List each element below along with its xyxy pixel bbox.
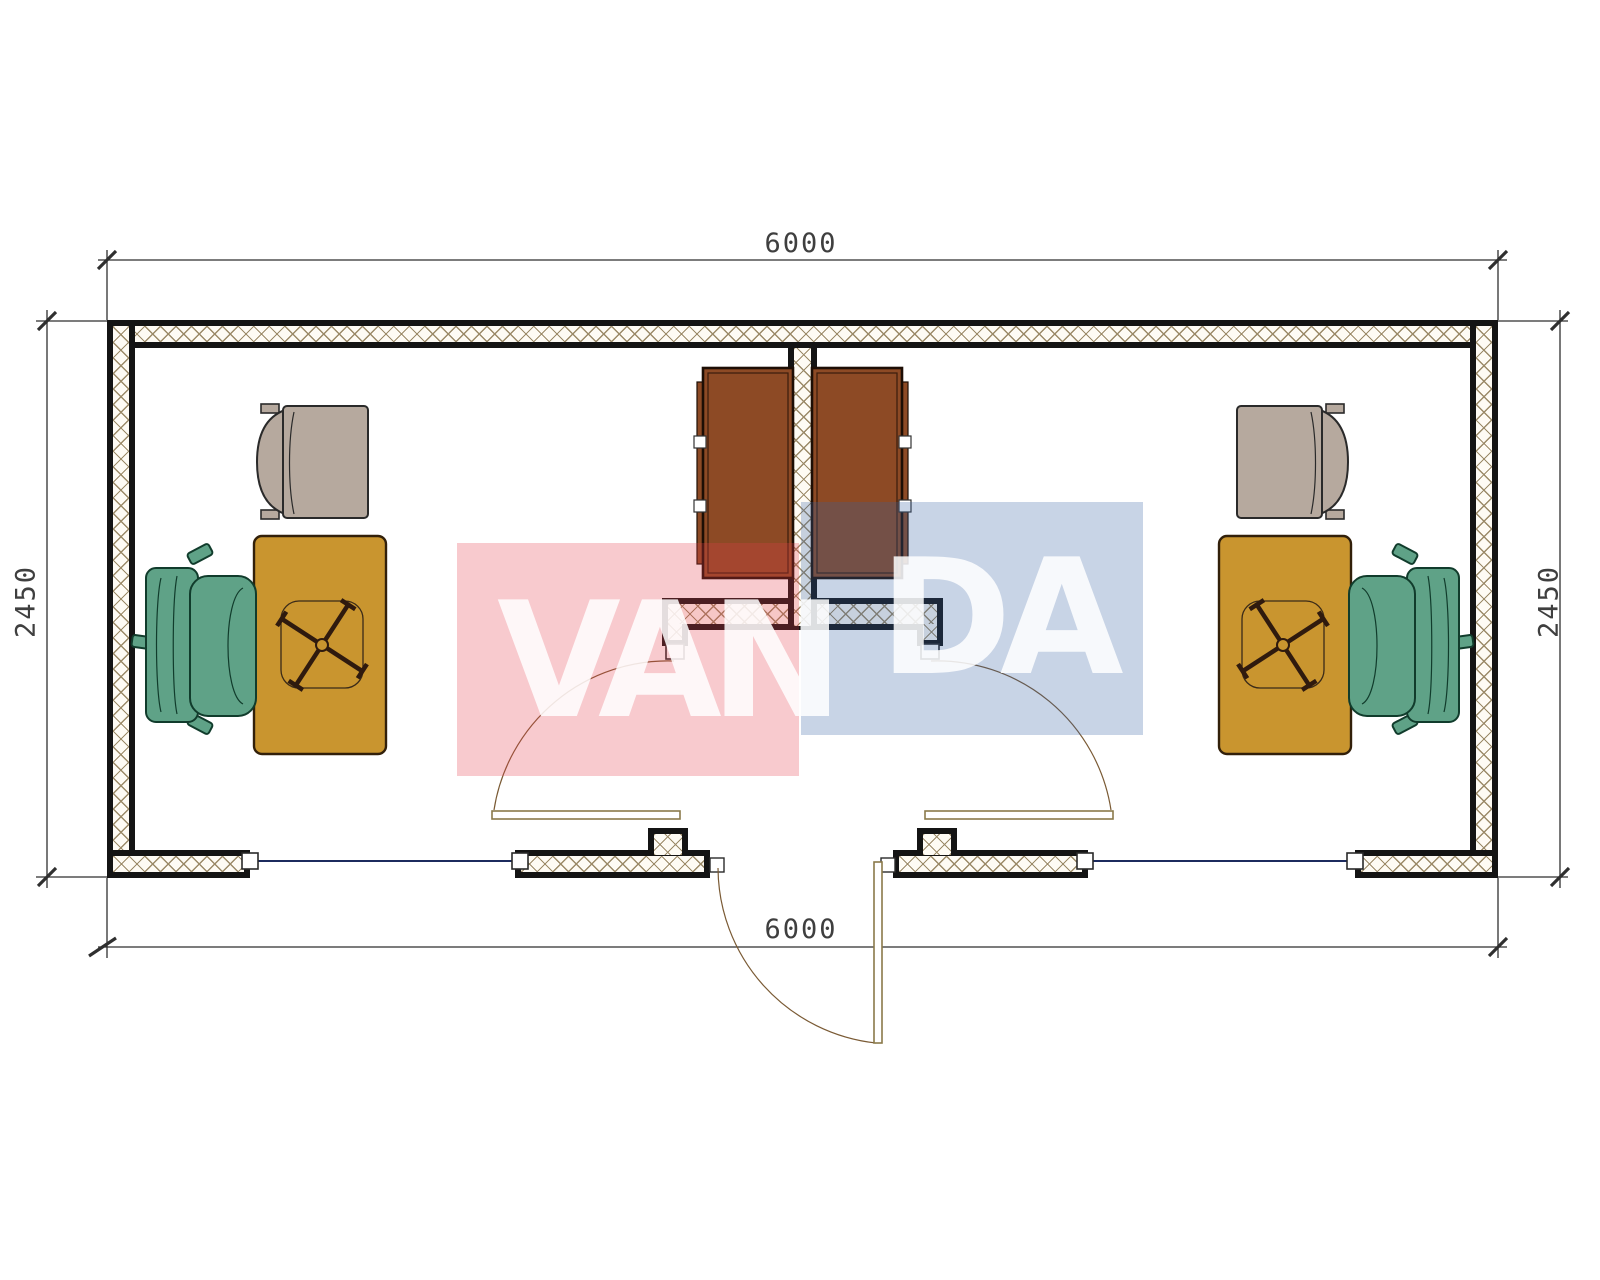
dimension-height-left: 2450 [11,542,42,662]
dimension-width-bottom: 6000 [741,914,861,945]
window-jamb [512,853,528,869]
room-door-leaf [492,811,680,819]
entrance-door-swing-arc [718,868,876,1043]
floor-plan-canvas: 6000 6000 2450 2450 VAN DA [0,0,1600,1280]
window-jamb [242,853,258,869]
armchair [257,404,368,519]
office-chair [131,543,256,735]
entrance-door [718,862,882,1043]
watermark-text-right: DA [879,538,1112,698]
entrance-jamb [710,858,724,872]
entrance-door-leaf [874,862,882,1043]
dimension-height-right: 2450 [1534,542,1565,662]
watermark-text-left: VAN [497,581,832,741]
dimension-width-top: 6000 [741,228,861,259]
